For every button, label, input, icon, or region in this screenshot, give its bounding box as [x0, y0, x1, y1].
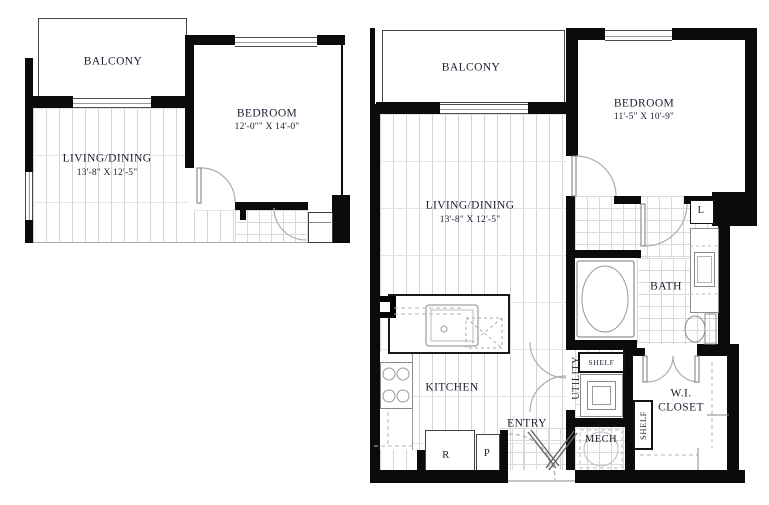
- plan-b-bath-door-leaf: [641, 204, 645, 246]
- plan-a-bedroom-label: BEDROOM: [237, 108, 297, 121]
- toilet-bowl: [685, 316, 705, 342]
- burner: [383, 390, 395, 402]
- plan-b-living-dims: 13'-8" X 12'-5": [440, 215, 501, 225]
- mech-label: MECH: [585, 434, 617, 446]
- bathtub: [577, 261, 634, 337]
- pantry-label: P: [484, 448, 490, 460]
- burner: [383, 368, 395, 380]
- toilet-tank: [705, 314, 716, 344]
- closet-door-leaf-right: [695, 356, 699, 382]
- plan-a-balcony-label: BALCONY: [84, 56, 142, 69]
- plan-a-bedroom-door-arc: [201, 168, 235, 202]
- wi-closet-label-line1: W.I.: [671, 388, 692, 401]
- floor-plan-sheet: { "colors": {"wall": "#0b0b0b", "floor_l…: [0, 0, 769, 505]
- linen-label: L: [698, 205, 705, 217]
- entry-label: ENTRY: [507, 418, 547, 431]
- kitchen-label: KITCHEN: [425, 382, 478, 395]
- plan-b-bedroom-label: BEDROOM: [614, 98, 674, 111]
- burner: [397, 368, 409, 380]
- plan-b-living-label: LIVING/DINING: [426, 200, 515, 213]
- plan-b-bedroom-dims: 11'-5" X 10'-9": [614, 112, 674, 122]
- plan-b-bath-door-arc: [645, 204, 687, 246]
- utility-label: UTILITY: [571, 356, 582, 400]
- plan-a-living-label: LIVING/DINING: [63, 153, 152, 166]
- burner: [397, 390, 409, 402]
- plan-a-bedroom-dims: 12'-0"" X 14'-0": [235, 122, 300, 132]
- utility-bifold-arc-bottom: [530, 376, 566, 412]
- entry-doors: [508, 430, 577, 481]
- kitchen-sink-inner: [431, 310, 473, 341]
- bath-fixtures: [577, 246, 717, 344]
- plan-a-bedroom-door-leaf: [197, 168, 201, 203]
- kitchen-sink-outer: [426, 305, 478, 346]
- kitchen-fixtures: [374, 305, 502, 446]
- plan-b-balcony-label: BALCONY: [442, 62, 500, 75]
- closet-door-arc-left: [647, 356, 673, 382]
- plan-b-bedroom-door-arc: [576, 156, 616, 196]
- plan-b-bedroom-door-leaf: [572, 156, 576, 196]
- refrigerator-label: R: [442, 450, 449, 462]
- plan-a-closet-door-arc: [274, 208, 306, 240]
- door-leaves: [197, 156, 699, 382]
- utility-label-box: UTILITY: [567, 346, 585, 410]
- wi-closet-label-line2: CLOSET: [658, 402, 704, 415]
- sink-drain: [441, 326, 447, 332]
- plan-a-living-dims: 13'-8" X 12'-5": [77, 168, 138, 178]
- fixtures-layer: [0, 0, 769, 505]
- closet-door-leaf-left: [643, 356, 647, 382]
- bath-label: BATH: [650, 281, 682, 294]
- utility-bifold-arc-top: [530, 342, 566, 378]
- bathtub-basin: [582, 266, 628, 332]
